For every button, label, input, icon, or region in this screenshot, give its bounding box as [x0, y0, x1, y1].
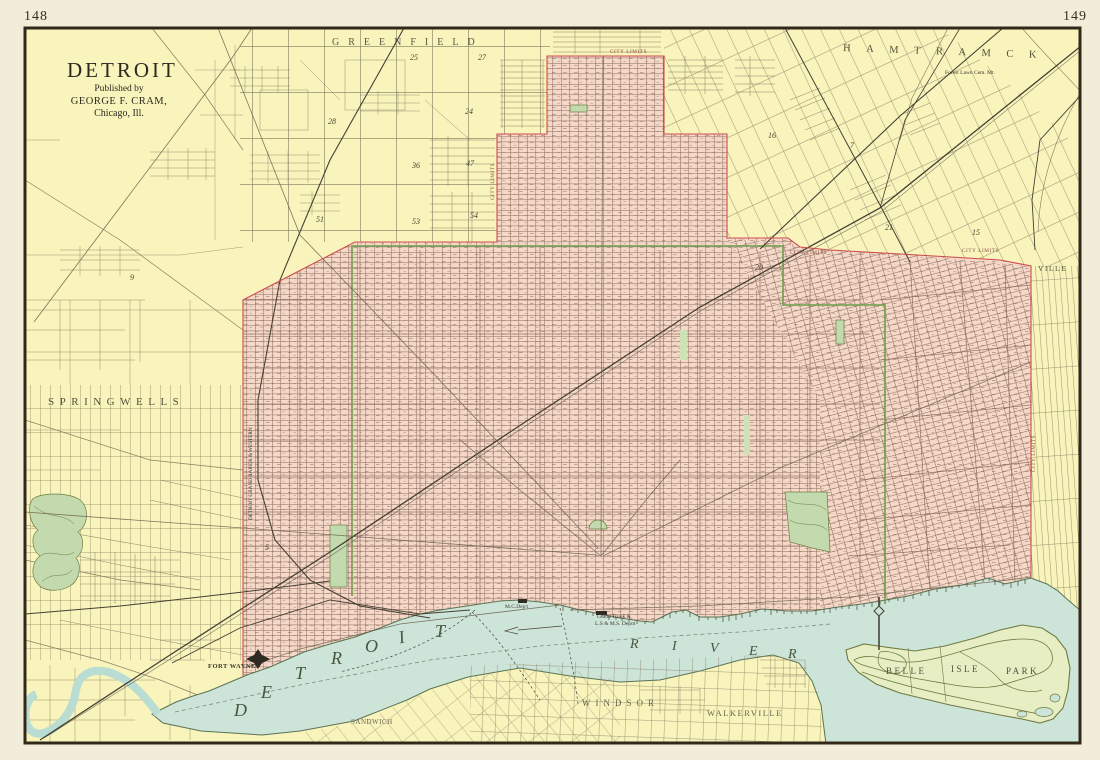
svg-text:Forest Lawn Cem. Mt.: Forest Lawn Cem. Mt. [945, 70, 996, 76]
svg-text:24: 24 [465, 107, 473, 116]
svg-text:149: 149 [1063, 9, 1087, 24]
svg-text:V: V [710, 641, 720, 656]
svg-text:M.C.Dep't: M.C.Dep't [505, 604, 528, 610]
svg-text:ISLE: ISLE [951, 664, 980, 674]
svg-text:21: 21 [885, 223, 893, 232]
svg-text:54: 54 [470, 211, 478, 220]
svg-text:R: R [330, 648, 342, 668]
svg-text:27: 27 [478, 53, 487, 62]
svg-text:Chicago, Ill.: Chicago, Ill. [94, 108, 144, 119]
svg-text:WINDSOR: WINDSOR [582, 698, 659, 708]
svg-text:Grand Trunk &: Grand Trunk & [597, 614, 632, 620]
svg-text:R: R [787, 647, 797, 662]
svg-text:SPRINGWELLS: SPRINGWELLS [48, 396, 184, 408]
svg-text:47: 47 [466, 159, 475, 168]
svg-text:O: O [365, 636, 378, 656]
svg-text:28: 28 [328, 117, 336, 126]
svg-text:16: 16 [768, 131, 776, 140]
svg-text:15: 15 [972, 228, 980, 237]
svg-text:E: E [260, 682, 272, 702]
svg-text:9: 9 [130, 273, 134, 282]
svg-text:5: 5 [265, 543, 269, 552]
svg-text:Published by: Published by [94, 84, 144, 94]
svg-text:E: E [748, 644, 758, 659]
svg-text:WALKERVILLE: WALKERVILLE [707, 708, 783, 718]
svg-text:GEORGE F. CRAM,: GEORGE F. CRAM, [71, 96, 168, 107]
svg-text:36: 36 [411, 161, 420, 170]
svg-text:FORT WAYNE: FORT WAYNE [208, 663, 256, 670]
svg-text:SANDWICH: SANDWICH [351, 718, 393, 726]
svg-text:D: D [233, 700, 247, 720]
svg-text:148: 148 [24, 9, 48, 24]
svg-text:25: 25 [410, 53, 418, 62]
svg-text:PARK: PARK [1006, 666, 1039, 676]
svg-text:R: R [629, 637, 639, 652]
svg-text:DETROIT GRAND RAPIDS & WESTERN: DETROIT GRAND RAPIDS & WESTERN [248, 427, 254, 520]
svg-text:L.S & M.S. Depot: L.S & M.S. Depot [595, 621, 636, 627]
svg-text:CITY LIMITS: CITY LIMITS [490, 163, 496, 200]
svg-text:20: 20 [755, 263, 763, 272]
svg-text:GREENFIELD: GREENFIELD [332, 37, 484, 48]
svg-text:51: 51 [316, 215, 324, 224]
svg-text:BELLE: BELLE [886, 666, 927, 676]
svg-text:DETROIT: DETROIT [67, 58, 178, 82]
svg-text:CITY LIMITS: CITY LIMITS [962, 248, 999, 254]
svg-text:CITY LIMITS: CITY LIMITS [1031, 435, 1037, 472]
svg-text:CITY LIMITS: CITY LIMITS [610, 49, 647, 55]
svg-text:CITY LIMITS: CITY LIMITS [790, 250, 827, 256]
svg-text:VILLE: VILLE [1038, 264, 1067, 273]
svg-text:53: 53 [412, 217, 420, 226]
